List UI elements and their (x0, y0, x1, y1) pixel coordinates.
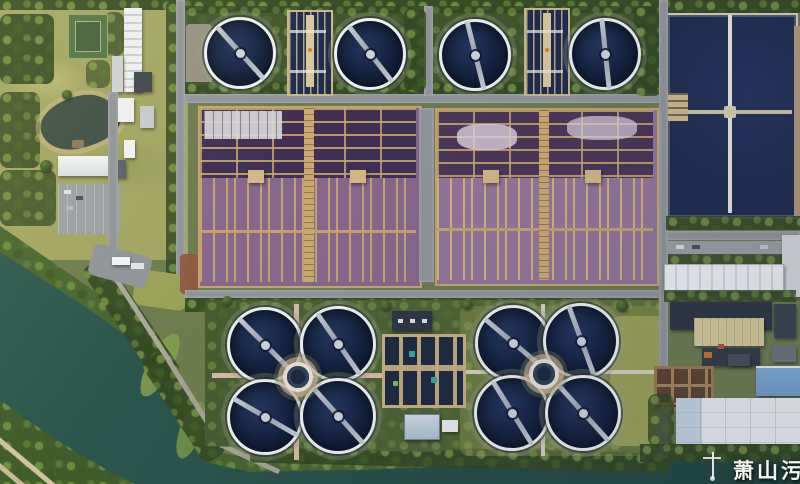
clarifier-center (261, 341, 270, 350)
clarifier-top-2 (334, 18, 406, 90)
car (760, 245, 768, 249)
plant-building-tan-roof (694, 318, 764, 346)
car (66, 206, 73, 210)
distribution-hub-left (283, 362, 313, 392)
clarifier-bl-4 (300, 378, 376, 454)
pump-station (585, 170, 601, 183)
tank-equipment (431, 377, 437, 383)
light-pole-arm (703, 457, 721, 459)
warehouse-long (664, 264, 784, 292)
storage-basin (666, 13, 798, 219)
boundary-road (176, 0, 185, 296)
park-tree-cluster (0, 170, 56, 226)
basin-crosswalk (527, 70, 563, 73)
tennis-court-lines (75, 21, 101, 52)
walkway-junction (724, 106, 736, 118)
equipment-orange (704, 352, 712, 358)
tree-row (668, 254, 798, 264)
aerial-photo: 萧山污水 (0, 0, 800, 484)
soil-stockpile (180, 254, 198, 294)
clarifier-center (577, 337, 586, 346)
park-tree-cluster (0, 92, 40, 168)
basin-crosswalk (290, 30, 326, 33)
tree (462, 300, 472, 310)
parking-strip (668, 241, 798, 255)
tree (40, 160, 52, 172)
clarifier-top-3 (439, 19, 511, 91)
clarifier-top-1 (204, 17, 276, 89)
pump-station (248, 170, 264, 183)
equipment-red (718, 344, 724, 349)
clarifier-center (471, 51, 480, 60)
car (76, 196, 83, 200)
clarifier-center (236, 49, 245, 58)
facility-building (392, 311, 432, 331)
plant-road-middle (185, 290, 663, 298)
facility-shed (442, 420, 458, 432)
park-road (108, 92, 118, 268)
basin-crosswalk (290, 70, 326, 73)
plant-building-gray (772, 346, 796, 362)
aeration-basin-left (198, 106, 422, 288)
light-pole (712, 452, 714, 478)
plant-building-dark (774, 304, 796, 338)
tree-row (664, 290, 796, 302)
building (112, 56, 123, 92)
watermark: 萧山污水 (733, 455, 800, 484)
gate-house (112, 257, 130, 265)
foam-patch (457, 124, 517, 150)
filter-basin (287, 10, 333, 96)
roof-vent (398, 319, 403, 323)
clarifier-center (508, 409, 517, 418)
facility-building-lower (404, 414, 440, 440)
distribution-hub-right (529, 359, 559, 389)
roof-vent (422, 319, 427, 323)
clarifier-center (579, 409, 588, 418)
soil-strip (794, 26, 800, 216)
office-building (58, 156, 108, 176)
filter-basin (524, 8, 570, 96)
sludge-tanks (382, 334, 466, 408)
plant-shed (728, 354, 750, 366)
tree-patch (404, 8, 426, 92)
tree (616, 300, 628, 312)
tree (380, 300, 391, 311)
basin-equipment (308, 48, 312, 52)
tank-equipment (409, 351, 415, 357)
foam-patch (567, 116, 637, 140)
car (676, 245, 684, 249)
roof-vent (410, 319, 415, 323)
tree-patch (648, 394, 674, 446)
treatment-hall (676, 398, 800, 444)
tree-row (666, 216, 800, 230)
plant-road-between-basins (419, 108, 434, 282)
park-tree-cluster (0, 14, 54, 84)
clarifier-center (261, 413, 270, 422)
park-tree-cluster (86, 60, 110, 88)
pump-station (483, 170, 499, 183)
clarifier-top-4 (569, 18, 641, 90)
building (124, 140, 135, 158)
car (64, 190, 71, 194)
building (134, 72, 152, 92)
aeration-basin-right (435, 108, 659, 286)
truck (131, 263, 144, 269)
light-pole-base (710, 476, 715, 481)
tree (62, 90, 72, 100)
tennis-court (68, 14, 108, 59)
clarifier-center (366, 50, 375, 59)
basin-crosswalk (527, 30, 563, 33)
tank-equipment (393, 381, 398, 386)
covered-cells (204, 111, 282, 139)
clarifier-center (334, 340, 343, 349)
clarifier-br-4 (545, 375, 621, 451)
inlet-structure (668, 93, 688, 121)
road-east-horizontal (666, 231, 800, 240)
pump-station (350, 170, 366, 183)
basin-equipment (545, 48, 549, 52)
central-gallery (539, 110, 549, 280)
warehouse-east (782, 235, 800, 297)
car (692, 245, 700, 249)
clarifier-center (509, 339, 518, 348)
building (140, 106, 154, 128)
blue-roof-building (756, 366, 800, 396)
clarifier-center (601, 50, 610, 59)
pond-pavilion (72, 140, 84, 148)
tree (222, 296, 232, 306)
central-gallery (304, 108, 314, 282)
clarifier-center (334, 412, 343, 421)
